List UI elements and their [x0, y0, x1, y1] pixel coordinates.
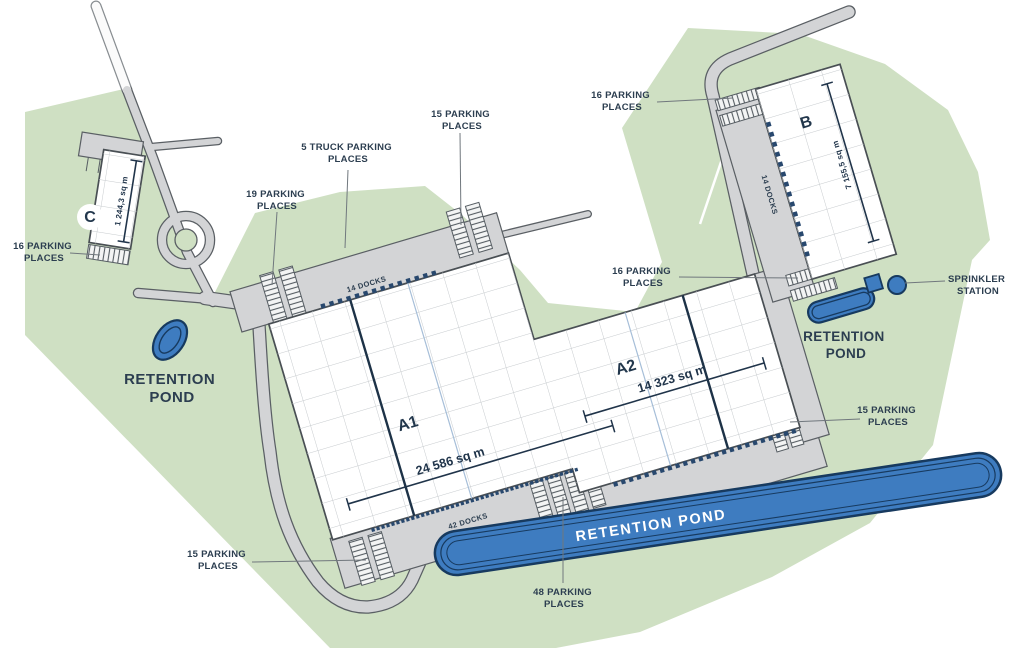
building-c-label: C [84, 209, 96, 226]
label-line: PLACES [544, 599, 584, 610]
cul-de-sac-island [175, 229, 197, 251]
site-plan-page: 24 586 sq m 14 323 sq m 14 DOCKS 42 DOCK… [0, 0, 1024, 650]
label-line: PLACES [868, 417, 908, 428]
label-line: PLACES [623, 278, 663, 289]
label-sprinkler-station: SPRINKLER STATION [948, 274, 1008, 297]
label-line: 15 PARKING [187, 549, 246, 560]
label-line: 16 PARKING [612, 266, 671, 277]
site-plan-canvas: 24 586 sq m 14 323 sq m 14 DOCKS 42 DOCK… [0, 0, 1024, 650]
label-line: PLACES [602, 102, 642, 113]
label-line: STATION [957, 286, 999, 297]
label-line: PLACES [198, 561, 238, 572]
label-line: 5 TRUCK PARKING [301, 142, 392, 153]
label-line: POND [149, 389, 194, 406]
label-line: 19 PARKING [246, 189, 305, 200]
label-line: 16 PARKING [13, 241, 72, 252]
label-line: POND [826, 346, 867, 361]
label-line: 48 PARKING [533, 587, 592, 598]
label-line: 15 PARKING [431, 109, 490, 120]
label-line: PLACES [24, 253, 64, 264]
label-line: PLACES [442, 121, 482, 132]
label-line: RETENTION [803, 329, 885, 344]
label-line: SPRINKLER [948, 274, 1005, 285]
label-line: RETENTION [124, 371, 215, 388]
label-line: 16 PARKING [591, 90, 650, 101]
label-line: 15 PARKING [857, 405, 916, 416]
label-line: PLACES [257, 201, 297, 212]
label-line: PLACES [328, 154, 368, 165]
